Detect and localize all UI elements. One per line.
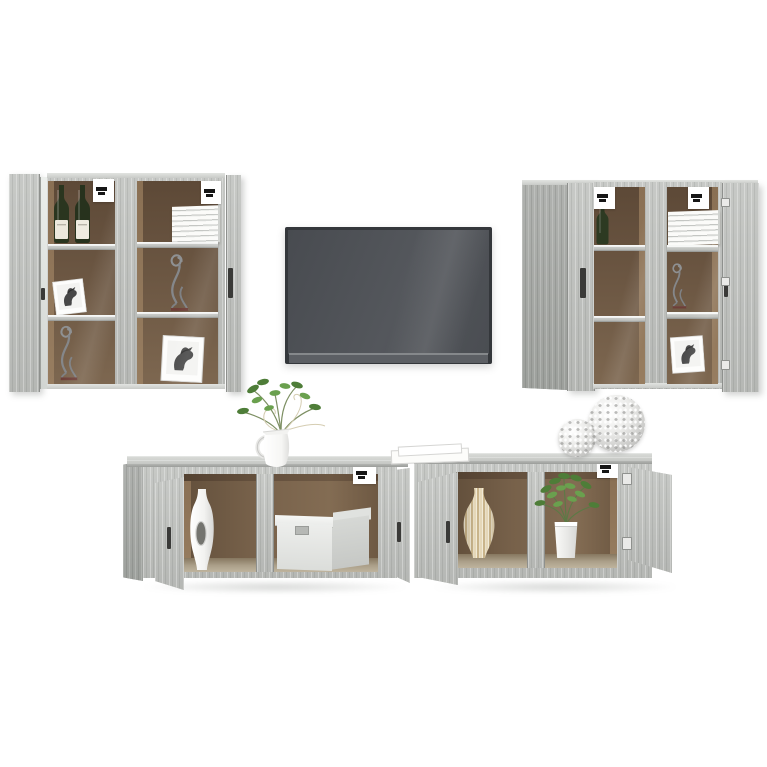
storage-box-clasp [295,526,309,535]
door-hinge [721,360,730,370]
tv [285,227,492,364]
bracket-icon [693,199,700,202]
plant-pot [553,522,579,558]
mounting-card [594,187,615,209]
mounting-card [688,187,709,209]
bracket-icon [691,194,702,198]
bench-left-divider [256,474,274,572]
mounting-card [353,465,376,484]
bracket-icon [358,476,365,479]
bracket-icon [96,187,107,191]
bench-left-door-right-handle [397,522,401,542]
mounting-card [93,179,114,202]
tv-screen-reflection [288,230,489,354]
bracket-icon [600,465,611,469]
bracket-icon [599,199,606,202]
tv-bottom-rail [289,353,488,363]
wall-right-a-glass-sheen [594,187,645,384]
plant-pot-rim [555,522,577,527]
door-hinge [622,473,632,485]
wall-left-door-handle-right [228,268,233,298]
bench-left-door-left-handle [167,527,171,549]
bracket-icon [602,470,609,473]
bench-right-door-left-handle [446,521,450,543]
white-jug [250,424,300,468]
wall-left-bottom-edge [47,384,225,389]
striped-vase [459,486,499,562]
door-hinge [721,198,730,207]
potted-plant-foliage [528,466,604,526]
decorative-sphere-small [558,419,596,457]
bracket-icon [356,471,367,475]
bracket-icon [597,194,608,198]
wall-right-door-handle-left [580,268,586,298]
wall-left-a-glass-sheen [48,181,115,384]
mounting-card [201,181,221,204]
wall-left-top-edge [47,173,225,178]
bench-left-side-panel [123,461,143,581]
bracket-icon [204,189,215,193]
bracket-icon [98,192,105,195]
bench-right-shadow [430,580,680,594]
wall-left-door-handle-left [41,288,45,300]
wall-right-b-glass-sheen [667,187,718,384]
door-hinge [721,277,730,286]
wall-left-b-glass-sheen [137,181,218,384]
decorative-sphere-large [588,395,645,452]
white-cutout-vase [187,487,217,572]
bracket-icon [206,194,213,197]
product-photo-stage [0,0,767,767]
wall-right-side-panel [522,181,567,390]
door-hinge [622,537,632,550]
wall-left-open-door-left [9,174,40,392]
storage-box-side [332,515,369,569]
bench-right-door-left [418,472,458,585]
bench-left-door-right [381,468,410,583]
bench-left-interior-top-shadow [184,474,378,481]
bench-right-door-right [628,467,672,573]
